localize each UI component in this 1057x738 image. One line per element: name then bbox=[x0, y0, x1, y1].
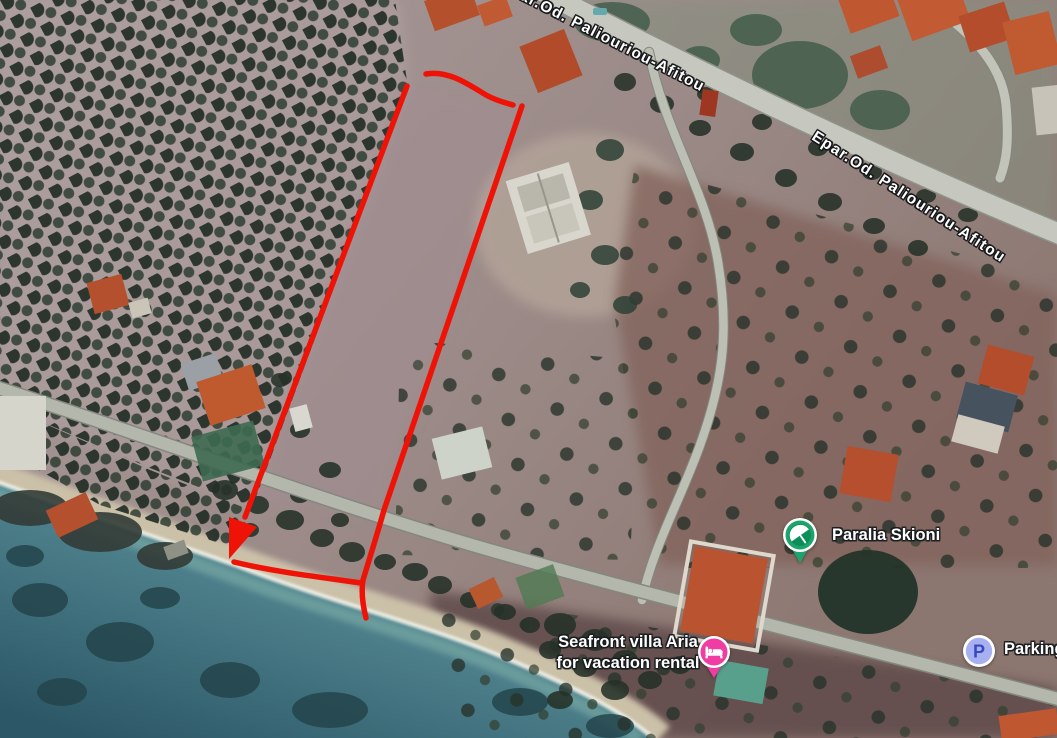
poi-label-seafront-villa[interactable]: Seafront villa Aria for vacation rental bbox=[538, 632, 718, 674]
seafront-villa-pin[interactable] bbox=[692, 632, 736, 686]
poi-label-seafront-villa-line2: for vacation rental bbox=[538, 653, 718, 674]
parking-icon: P bbox=[973, 642, 985, 662]
poi-label-paralia-skioni[interactable]: Paralia Skioni bbox=[832, 526, 940, 545]
paralia-skioni-pin[interactable] bbox=[777, 513, 823, 569]
poi-label-parking[interactable]: Parking bbox=[1004, 640, 1057, 659]
satellite-map-canvas[interactable]: Epar.Od. Paliouriou-Afitou Epar.Od. Pali… bbox=[0, 0, 1057, 738]
parking-pin[interactable]: P bbox=[960, 632, 998, 670]
poi-label-seafront-villa-line1: Seafront villa Aria bbox=[538, 632, 718, 653]
satellite-imagery bbox=[0, 0, 1057, 738]
hedge bbox=[818, 550, 918, 634]
